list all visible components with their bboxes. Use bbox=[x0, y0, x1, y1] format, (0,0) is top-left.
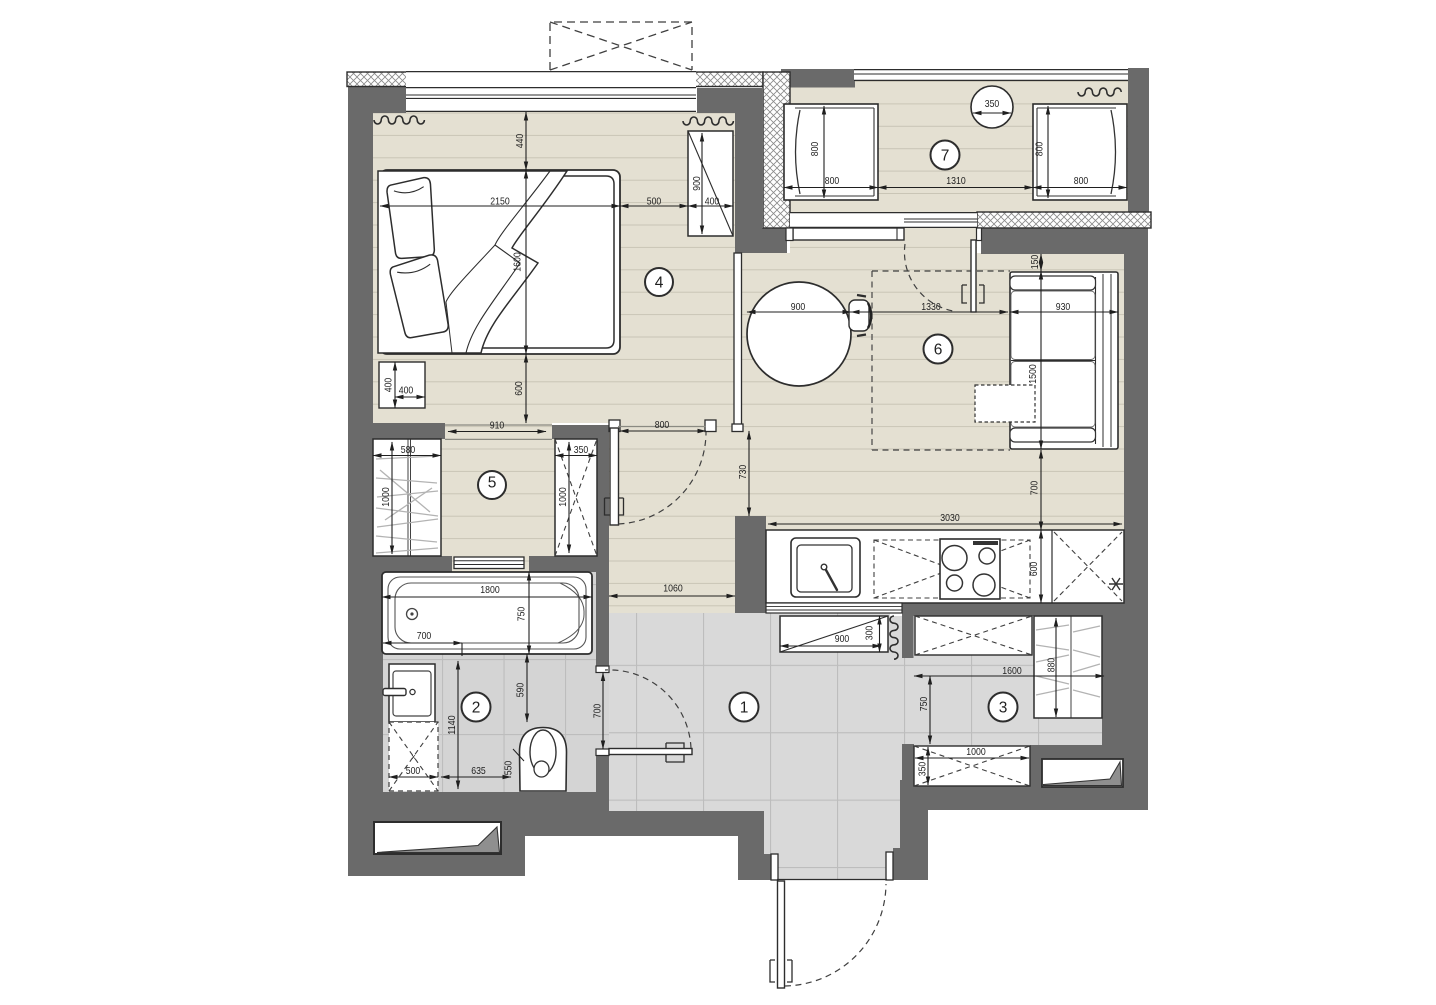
svg-text:1600: 1600 bbox=[513, 252, 524, 272]
svg-text:400: 400 bbox=[384, 378, 395, 393]
svg-text:1000: 1000 bbox=[558, 487, 569, 507]
svg-text:500: 500 bbox=[406, 766, 421, 777]
svg-text:3: 3 bbox=[999, 700, 1008, 717]
svg-text:700: 700 bbox=[593, 704, 604, 719]
svg-text:6: 6 bbox=[934, 342, 943, 359]
svg-text:930: 930 bbox=[1056, 302, 1071, 313]
svg-text:580: 580 bbox=[401, 445, 416, 456]
svg-text:x: x bbox=[412, 752, 416, 761]
svg-text:350: 350 bbox=[574, 445, 589, 456]
svg-text:300: 300 bbox=[865, 626, 876, 641]
svg-text:440: 440 bbox=[515, 134, 526, 149]
svg-text:1330: 1330 bbox=[921, 302, 941, 313]
svg-text:1310: 1310 bbox=[946, 176, 966, 187]
svg-text:7: 7 bbox=[941, 148, 950, 165]
svg-text:550: 550 bbox=[504, 761, 515, 776]
svg-text:1800: 1800 bbox=[480, 585, 500, 596]
svg-text:800: 800 bbox=[825, 176, 840, 187]
svg-text:350: 350 bbox=[918, 762, 929, 777]
svg-text:900: 900 bbox=[835, 634, 850, 645]
svg-text:1600: 1600 bbox=[1002, 666, 1022, 677]
svg-text:900: 900 bbox=[791, 302, 806, 313]
svg-text:600: 600 bbox=[1029, 562, 1040, 577]
svg-text:1060: 1060 bbox=[663, 584, 683, 595]
svg-text:1000: 1000 bbox=[966, 747, 986, 758]
svg-text:750: 750 bbox=[517, 607, 528, 622]
svg-text:800: 800 bbox=[1074, 176, 1089, 187]
svg-text:600: 600 bbox=[514, 381, 525, 396]
svg-text:5: 5 bbox=[488, 475, 497, 492]
svg-text:2150: 2150 bbox=[490, 197, 510, 208]
svg-text:800: 800 bbox=[1035, 142, 1046, 157]
svg-text:150: 150 bbox=[1030, 255, 1041, 270]
svg-text:700: 700 bbox=[1030, 481, 1041, 496]
svg-text:800: 800 bbox=[655, 420, 670, 431]
svg-text:1500: 1500 bbox=[1028, 364, 1039, 384]
svg-text:2: 2 bbox=[472, 700, 481, 717]
svg-text:400: 400 bbox=[705, 197, 720, 208]
svg-text:700: 700 bbox=[417, 631, 432, 642]
svg-text:750: 750 bbox=[919, 697, 930, 712]
svg-text:3030: 3030 bbox=[940, 513, 960, 524]
svg-text:4: 4 bbox=[655, 275, 664, 292]
svg-text:1: 1 bbox=[740, 700, 749, 717]
svg-text:1000: 1000 bbox=[381, 487, 392, 507]
svg-text:800: 800 bbox=[810, 142, 821, 157]
svg-text:880: 880 bbox=[1047, 658, 1058, 673]
svg-text:400: 400 bbox=[399, 386, 414, 397]
svg-text:1140: 1140 bbox=[447, 715, 458, 735]
svg-text:635: 635 bbox=[471, 766, 486, 777]
svg-text:590: 590 bbox=[516, 683, 527, 698]
svg-text:900: 900 bbox=[692, 176, 703, 191]
svg-text:910: 910 bbox=[490, 421, 505, 432]
svg-text:500: 500 bbox=[647, 197, 662, 208]
svg-text:350: 350 bbox=[985, 99, 1000, 110]
svg-text:730: 730 bbox=[738, 465, 749, 480]
